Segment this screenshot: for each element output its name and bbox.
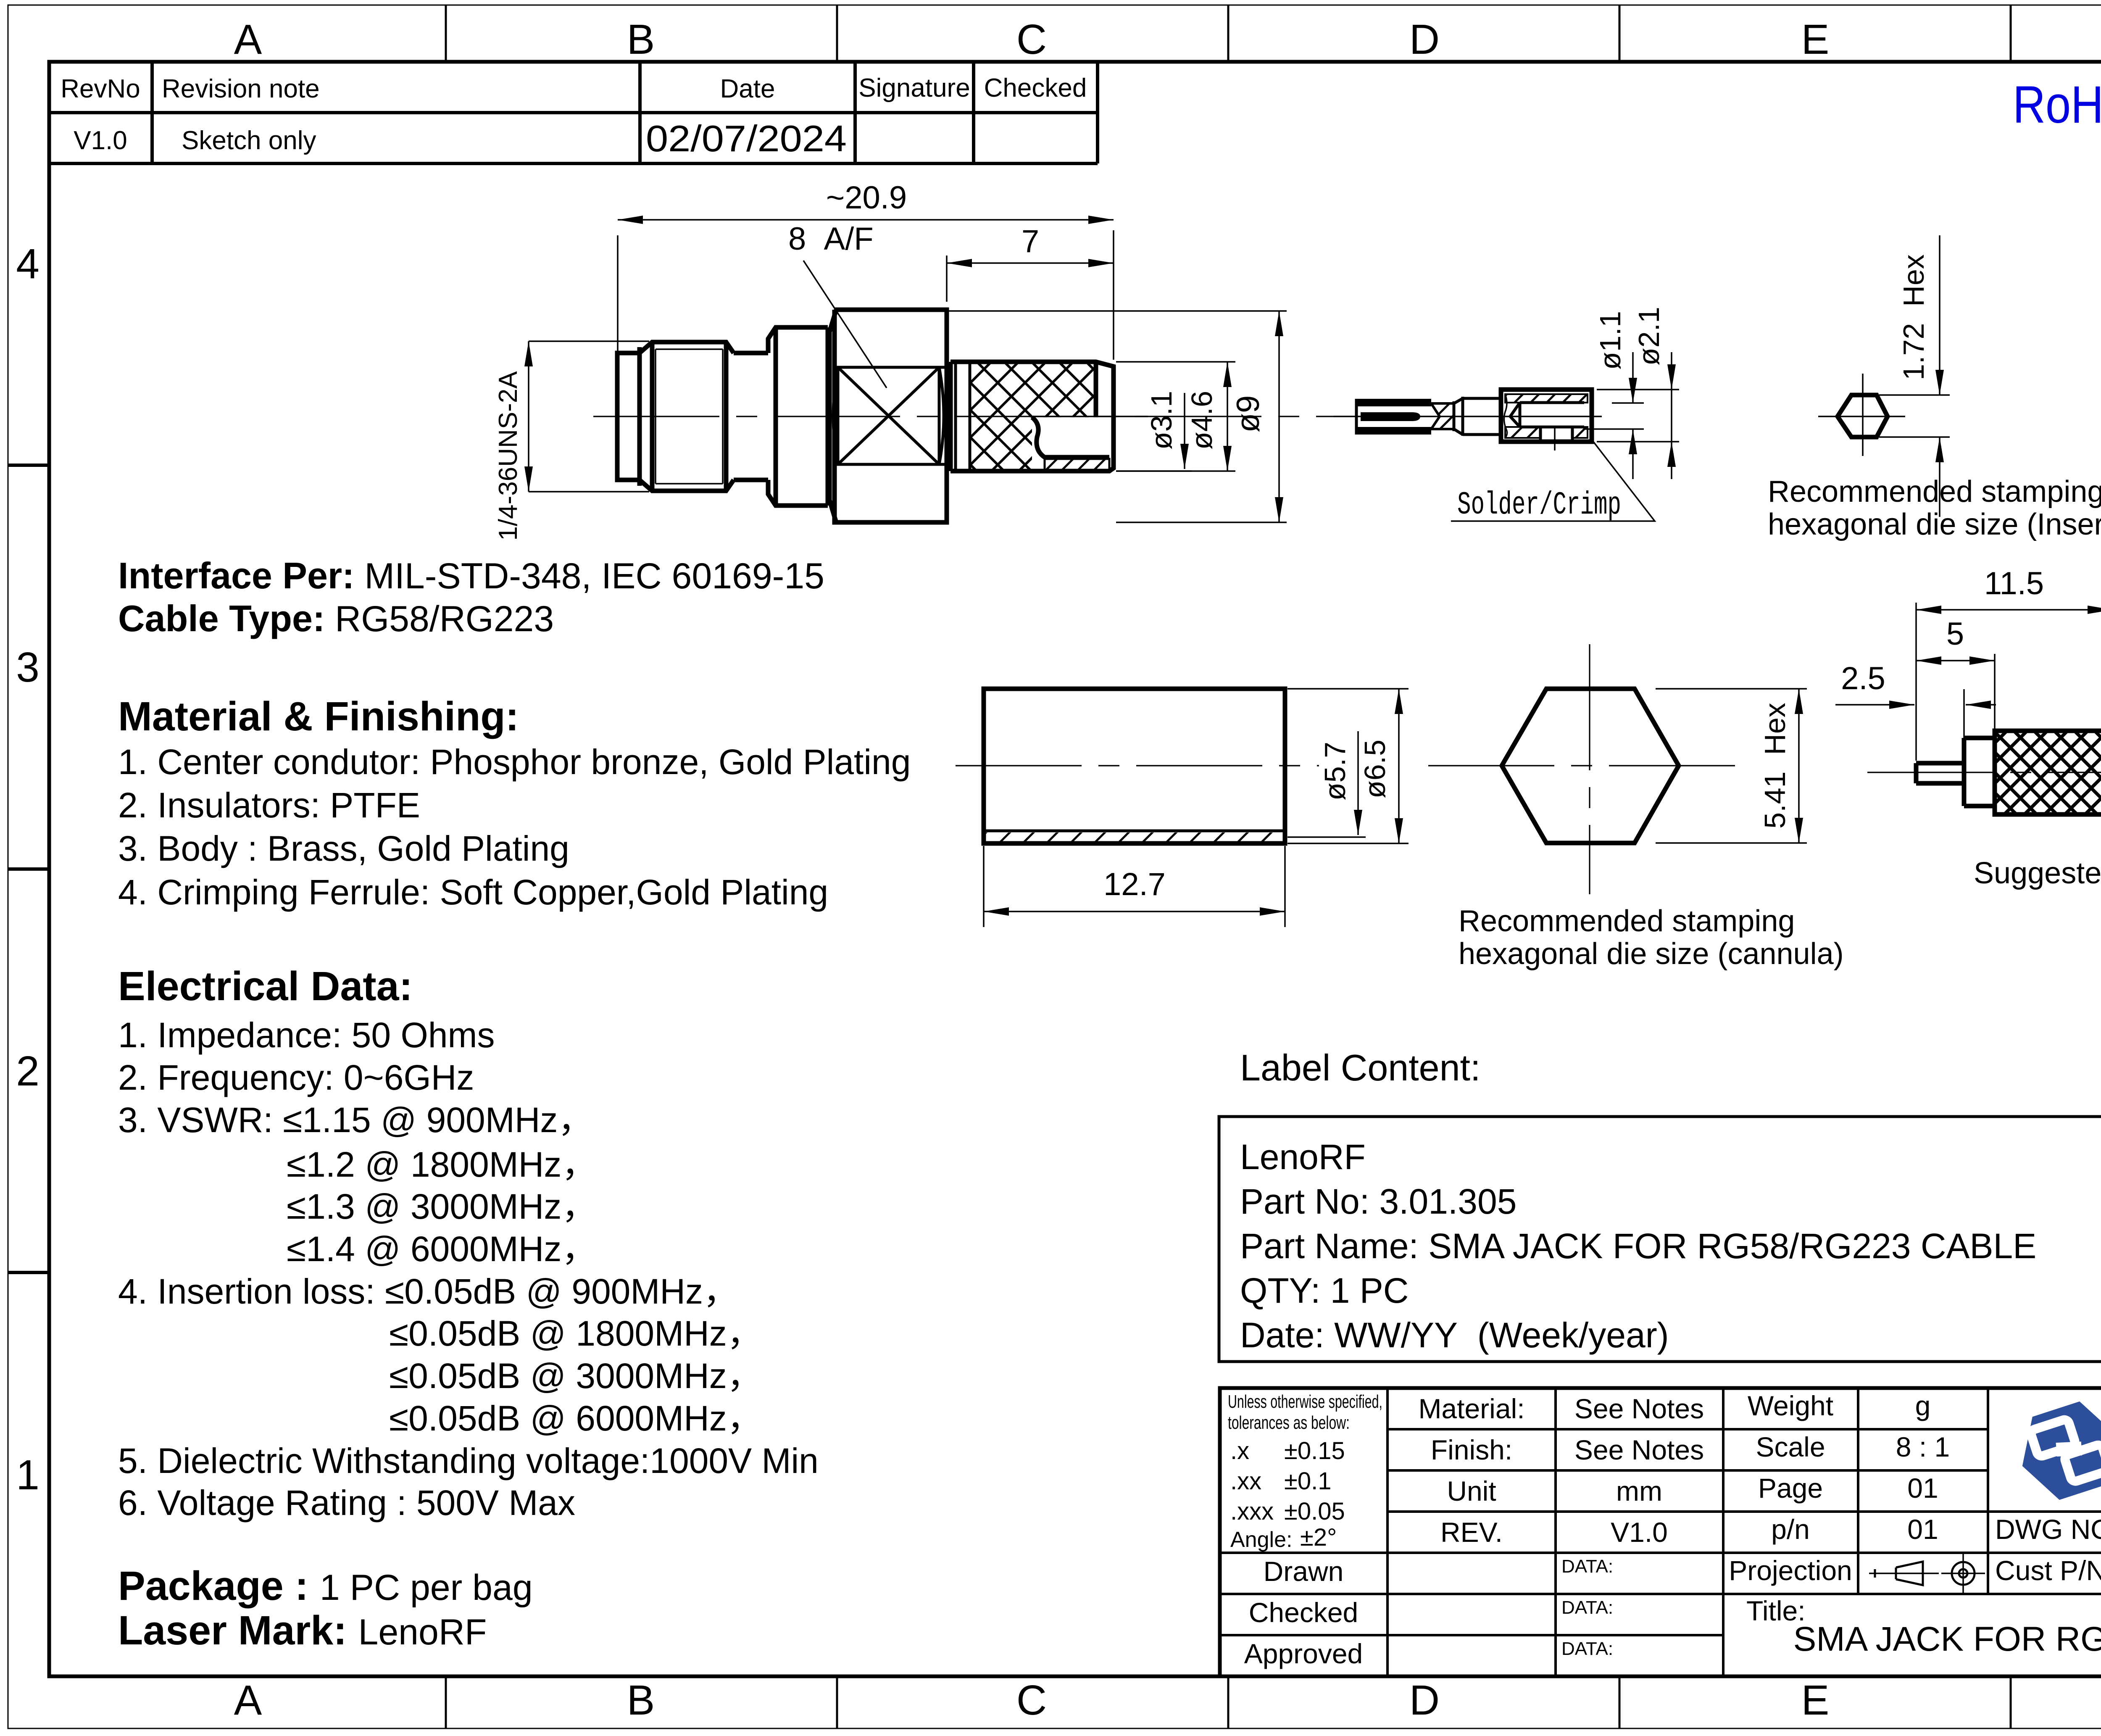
svg-text:RevNo: RevNo [61, 74, 140, 103]
svg-text:1.72 Hex: 1.72 Hex [1897, 254, 1930, 380]
svg-text:g: g [1915, 1390, 1931, 1421]
svg-text:DWG NO.: DWG NO. [1995, 1514, 2101, 1545]
svg-text:Date: Date [720, 74, 775, 103]
svg-text:7: 7 [1022, 224, 1039, 259]
svg-text:See Notes: See Notes [1574, 1434, 1704, 1465]
svg-text:.x: .x [1230, 1437, 1249, 1465]
svg-text:ø2.1: ø2.1 [1632, 307, 1665, 366]
svg-text:mm: mm [1616, 1475, 1662, 1507]
svg-text:ø3.1: ø3.1 [1145, 391, 1178, 450]
svg-text:D: D [1409, 1677, 1440, 1724]
svg-text:QTY: 1 PC: QTY: 1 PC [1240, 1271, 1409, 1310]
svg-text:Unless otherwise specified,: Unless otherwise specified, [1228, 1391, 1382, 1412]
svg-text:6. Voltage Rating : 500V Max: 6. Voltage Rating : 500V Max [118, 1483, 575, 1523]
svg-text:Scale: Scale [1756, 1431, 1825, 1462]
svg-text:±2°: ±2° [1300, 1524, 1337, 1551]
svg-text:ø1.1: ø1.1 [1594, 311, 1627, 370]
svg-text:Cust P/N.: Cust P/N. [1995, 1555, 2101, 1586]
svg-text:5: 5 [1946, 616, 1964, 652]
svg-text:02/07/2024: 02/07/2024 [646, 118, 847, 159]
svg-text:1: 1 [16, 1451, 39, 1499]
svg-text:V1.0: V1.0 [1611, 1517, 1668, 1548]
svg-text:Page: Page [1758, 1473, 1823, 1504]
svg-text:Part Name: SMA JACK FOR RG58/R: Part Name: SMA JACK FOR RG58/RG223 CABLE [1240, 1226, 2036, 1266]
svg-text:Revision note: Revision note [162, 74, 320, 103]
svg-text:01: 01 [1907, 1514, 1938, 1545]
svg-text:3: 3 [16, 644, 39, 691]
svg-text:hexagonal die size (cannula): hexagonal die size (cannula) [1459, 937, 1844, 971]
svg-text:SMA JACK FOR RG58/RG223 CABLE: SMA JACK FOR RG58/RG223 CABLE [1793, 1620, 2101, 1658]
svg-text:≤1.3 @ 3000MHz，: ≤1.3 @ 3000MHz， [287, 1187, 597, 1226]
svg-text:Date: WW/YY (Week/year): Date: WW/YY (Week/year) [1240, 1315, 1669, 1355]
svg-text:ø9: ø9 [1230, 395, 1266, 433]
svg-text:1. Impedance: 50 Ohms: 1. Impedance: 50 Ohms [118, 1015, 495, 1055]
svg-text:Recommended stamping: Recommended stamping [1459, 904, 1795, 938]
svg-text:3. VSWR: ≤1.15 @ 900MHz，: 3. VSWR: ≤1.15 @ 900MHz， [118, 1100, 593, 1140]
svg-text:≤0.05dB @ 6000MHz，: ≤0.05dB @ 6000MHz， [389, 1399, 762, 1438]
svg-text:Angle:: Angle: [1230, 1528, 1292, 1552]
svg-text:RoHS Compliant.: RoHS Compliant. [2013, 76, 2101, 134]
svg-text:±0.1: ±0.1 [1284, 1467, 1331, 1495]
svg-text:8 : 1: 8 : 1 [1896, 1431, 1950, 1462]
svg-text:4. Insertion loss: ≤0.05dB @ 9: 4. Insertion loss: ≤0.05dB @ 900MHz， [118, 1272, 738, 1311]
svg-text:Laser Mark: LenoRF: Laser Mark: LenoRF [118, 1607, 487, 1653]
svg-text:~20.9: ~20.9 [826, 180, 907, 216]
svg-text:12.7: 12.7 [1103, 867, 1166, 902]
svg-text:≤0.05dB @ 1800MHz，: ≤0.05dB @ 1800MHz， [389, 1314, 762, 1353]
svg-text:Label Content:: Label Content: [1240, 1047, 1480, 1088]
svg-text:E: E [1801, 1677, 1830, 1724]
svg-text:8 A/F: 8 A/F [788, 221, 874, 257]
svg-text:Checked: Checked [984, 74, 1087, 103]
svg-text:2.5: 2.5 [1841, 661, 1885, 696]
svg-text:2: 2 [16, 1048, 39, 1095]
svg-text:Cable Type: RG58/RG223: Cable Type: RG58/RG223 [118, 598, 554, 639]
svg-text:E: E [1801, 16, 1830, 63]
svg-text:≤0.05dB @ 3000MHz，: ≤0.05dB @ 3000MHz， [389, 1356, 762, 1396]
svg-text:A: A [234, 1677, 262, 1724]
svg-text:Unit: Unit [1447, 1475, 1496, 1507]
svg-text:B: B [627, 1677, 655, 1724]
svg-text:2. Frequency: 0~6GHz: 2. Frequency: 0~6GHz [118, 1058, 474, 1097]
svg-text:Package : 1 PC per bag: Package : 1 PC per bag [118, 1563, 533, 1609]
svg-text:Drawn: Drawn [1264, 1556, 1344, 1587]
svg-text:C: C [1016, 16, 1047, 63]
svg-text:C: C [1016, 1677, 1047, 1724]
svg-text:Signature: Signature [858, 74, 970, 103]
svg-text:Finish:: Finish: [1431, 1434, 1512, 1465]
svg-text:Approved: Approved [1244, 1638, 1363, 1669]
svg-text:≤1.2 @ 1800MHz，: ≤1.2 @ 1800MHz， [287, 1145, 597, 1184]
svg-text:DATA:: DATA: [1561, 1556, 1613, 1577]
svg-text:Weight: Weight [1748, 1390, 1833, 1421]
svg-text:Recommended stamping: Recommended stamping [1768, 475, 2101, 508]
svg-text:ø4.6: ø4.6 [1185, 391, 1218, 450]
svg-text:A: A [234, 16, 262, 63]
svg-text:5.41 Hex: 5.41 Hex [1759, 703, 1791, 829]
svg-text:V1.0: V1.0 [74, 126, 127, 155]
svg-text:DATA:: DATA: [1561, 1639, 1613, 1659]
svg-text:DATA:: DATA: [1561, 1597, 1613, 1618]
svg-text:11.5: 11.5 [1984, 566, 2044, 601]
svg-text:Projection: Projection [1729, 1555, 1852, 1586]
svg-text:ø5.7: ø5.7 [1319, 742, 1351, 801]
svg-text:hexagonal die size (Inserting: hexagonal die size (Inserting pin) [1768, 508, 2101, 541]
svg-text:LenoRF: LenoRF [1240, 1137, 1366, 1177]
svg-text:.xx: .xx [1230, 1467, 1261, 1495]
svg-text:4. Crimping Ferrule: Soft Copp: 4. Crimping Ferrule: Soft Copper,Gold Pl… [118, 872, 828, 912]
svg-text:Sketch only: Sketch only [182, 126, 316, 155]
svg-text:±0.05: ±0.05 [1284, 1498, 1345, 1525]
svg-text:±0.15: ±0.15 [1284, 1437, 1345, 1465]
svg-text:p/n: p/n [1771, 1514, 1810, 1545]
svg-text:See Notes: See Notes [1574, 1393, 1704, 1424]
svg-text:≤1.4 @ 6000MHz，: ≤1.4 @ 6000MHz， [287, 1229, 597, 1269]
svg-text:1. Center condutor: Phosphor b: 1. Center condutor: Phosphor bronze, Gol… [118, 742, 911, 782]
svg-text:.xxx: .xxx [1230, 1498, 1274, 1525]
svg-text:Material:: Material: [1418, 1393, 1524, 1424]
svg-text:Checked: Checked [1249, 1597, 1359, 1628]
svg-text:5. Dielectric Withstanding vol: 5. Dielectric Withstanding voltage:1000V… [118, 1441, 819, 1480]
svg-text:B: B [627, 16, 655, 63]
svg-text:4: 4 [16, 240, 39, 287]
svg-text:ø6.5: ø6.5 [1359, 740, 1391, 798]
svg-text:D: D [1409, 16, 1440, 63]
svg-text:01: 01 [1907, 1473, 1938, 1504]
svg-text:Part No: 3.01.305: Part No: 3.01.305 [1240, 1182, 1517, 1221]
svg-text:Solder/Crimp: Solder/Crimp [1457, 487, 1621, 523]
svg-text:Suggested stripping: Suggested stripping [1974, 856, 2101, 890]
svg-text:Interface Per: MIL-STD-348, IE: Interface Per: MIL-STD-348, IEC 60169-15 [118, 555, 824, 596]
svg-text:REV.: REV. [1440, 1517, 1503, 1548]
svg-text:Material & Finishing:: Material & Finishing: [118, 693, 519, 739]
svg-text:Electrical Data:: Electrical Data: [118, 963, 413, 1009]
svg-text:tolerances as below:: tolerances as below: [1228, 1412, 1350, 1433]
svg-text:3. Body : Brass, Gold Plating: 3. Body : Brass, Gold Plating [118, 829, 569, 868]
svg-text:1/4-36UNS-2A: 1/4-36UNS-2A [494, 371, 523, 541]
svg-text:2. Insulators: PTFE: 2. Insulators: PTFE [118, 785, 420, 825]
